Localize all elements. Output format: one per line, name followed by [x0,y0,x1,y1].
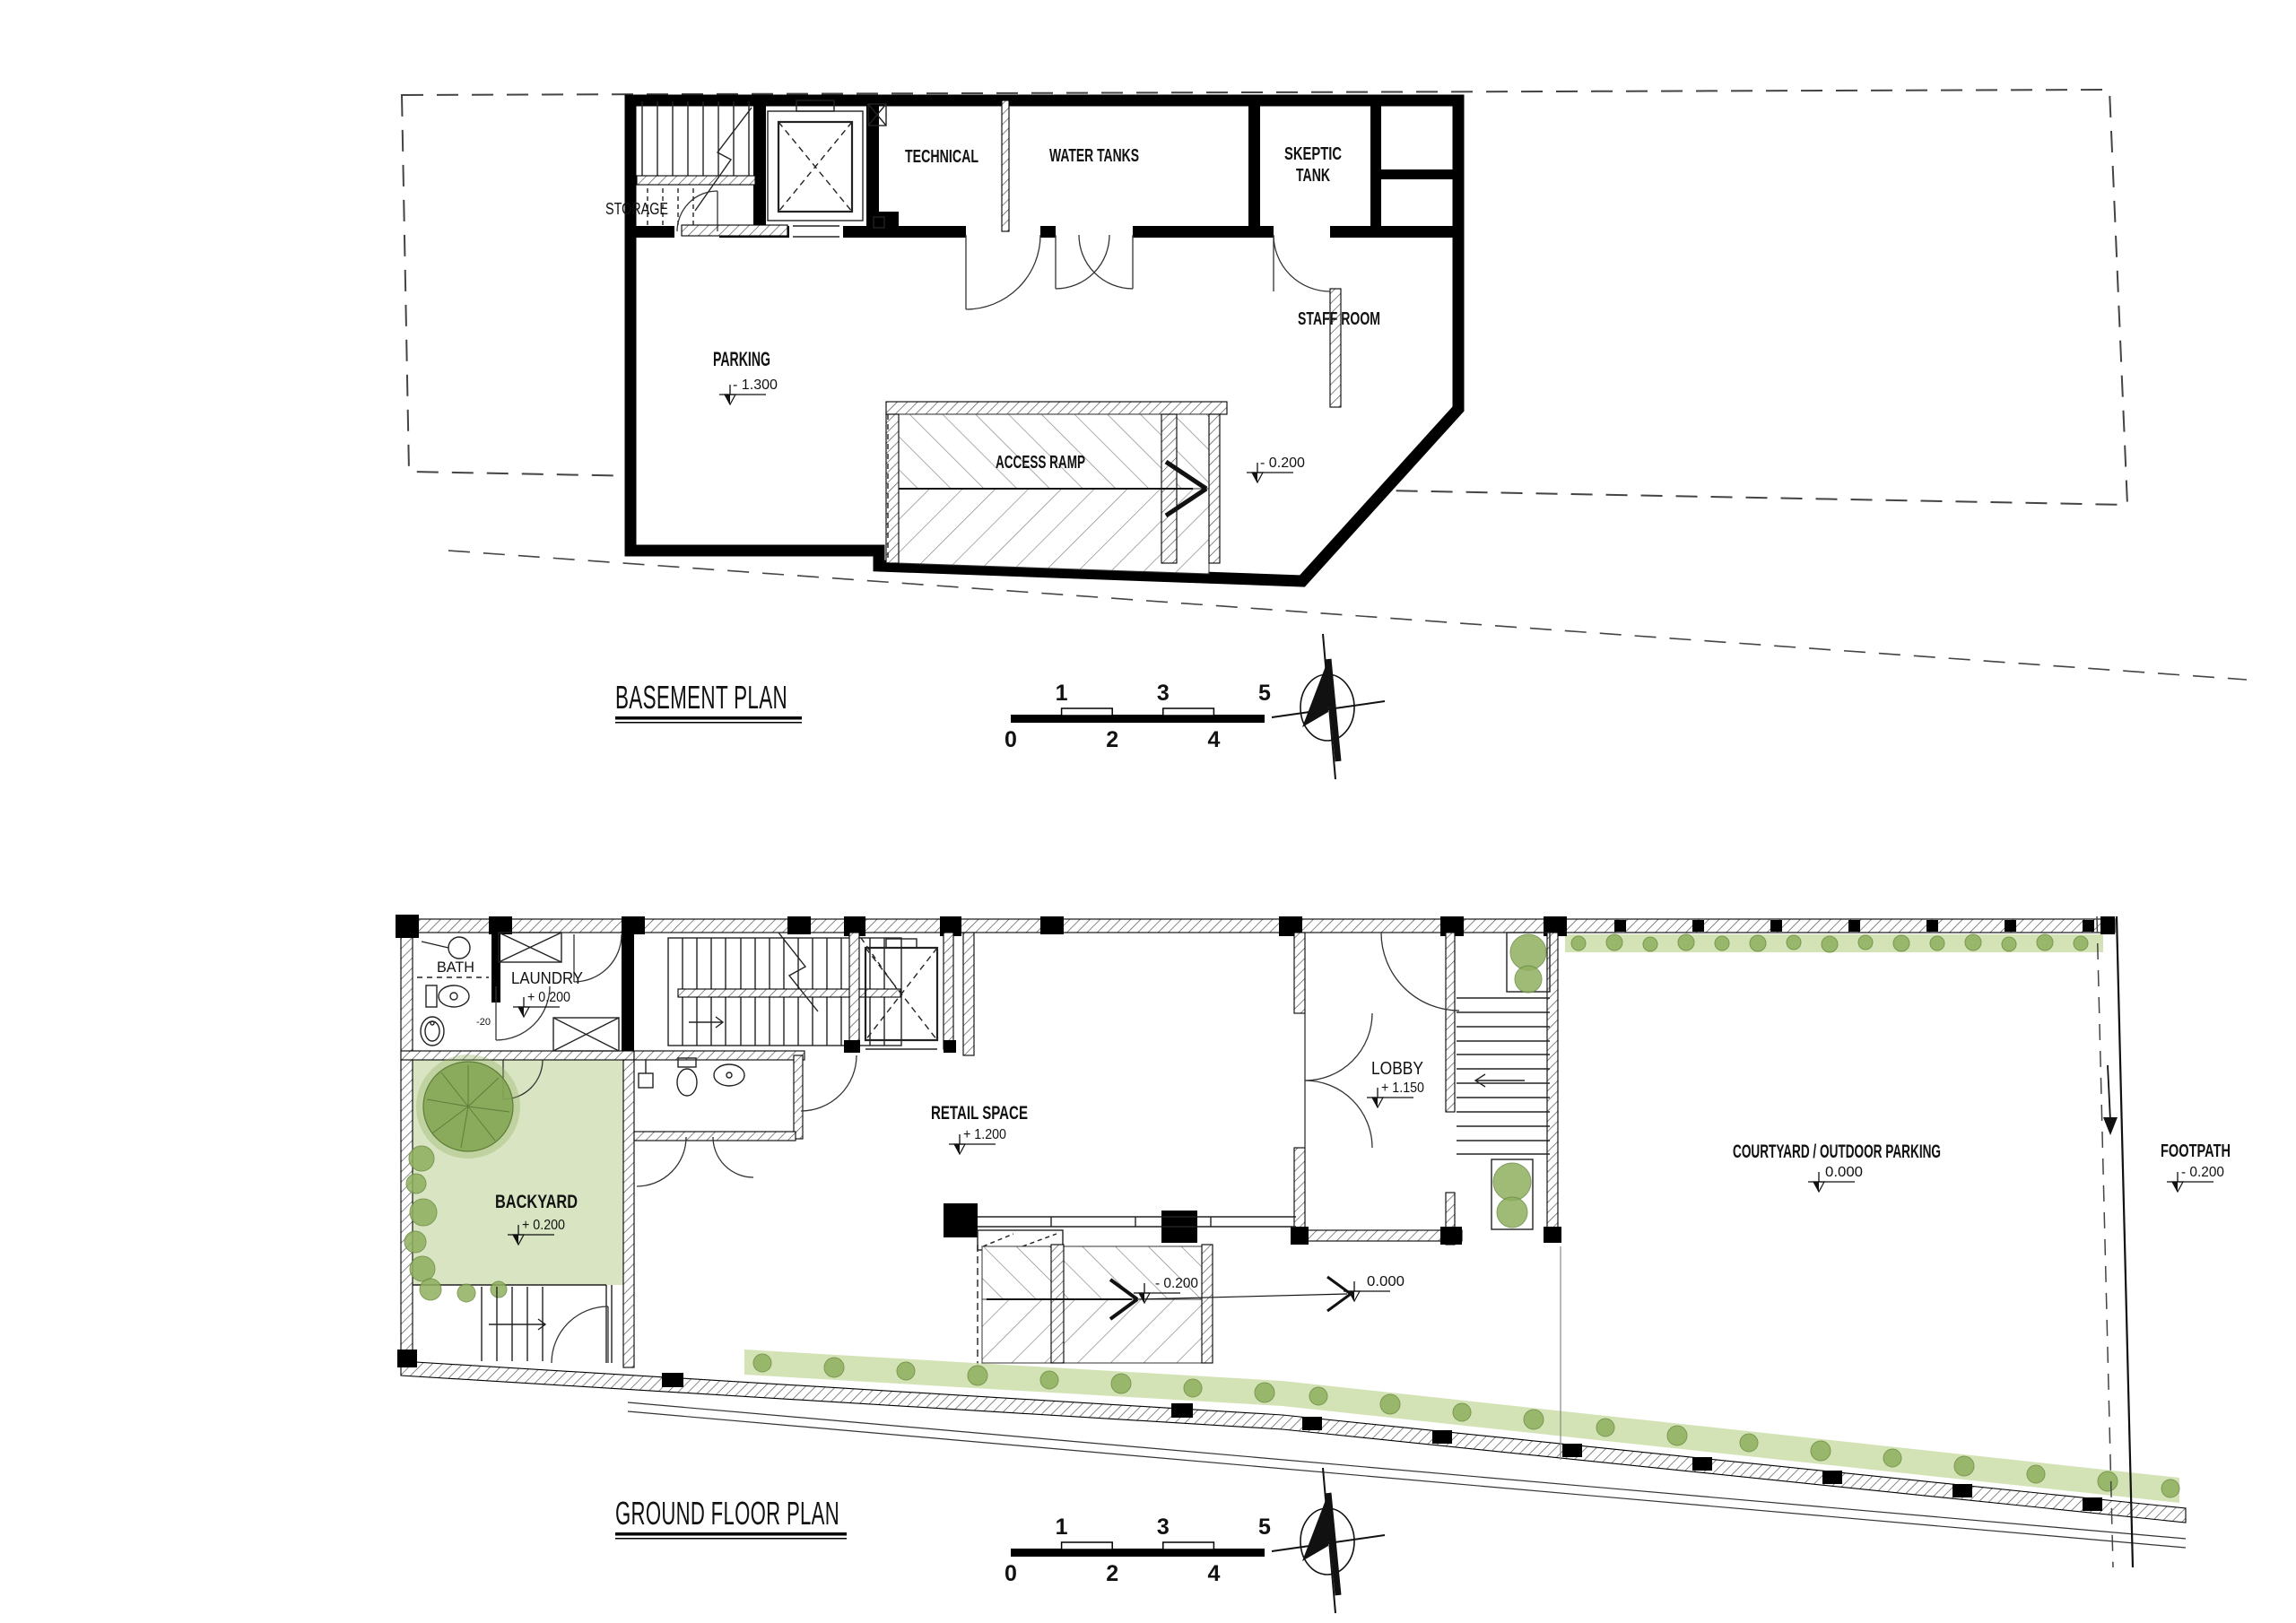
level-lobby: + 1.150 [1381,1081,1424,1096]
svg-text:5: 5 [1258,1515,1271,1540]
floor-plan-drawing: STORAGE TECHNICAL WATER TANKS SKEPTIC TA… [0,0,2296,1623]
svg-text:3: 3 [1157,681,1170,706]
level-driveway-low: - 0.200 [1155,1276,1198,1291]
room-label-staff-room: STAFF ROOM [1298,309,1380,329]
level-access-ramp: - 0.200 [1260,456,1305,471]
svg-text:0: 0 [1004,1561,1017,1586]
backyard-tree [416,1055,520,1159]
room-label-skeptic-tank-2: TANK [1296,166,1330,186]
basement-plan: STORAGE TECHNICAL WATER TANKS SKEPTIC TA… [402,90,2247,779]
street-direction-arrow [2103,1117,2118,1135]
svg-text:5: 5 [1258,681,1271,706]
room-label-parking: PARKING [713,348,770,370]
level-courtyard: 0.000 [1825,1165,1863,1180]
north-arrow-basement [1272,634,1385,779]
bath-fixtures [417,937,489,1046]
drawing-sheet: STORAGE TECHNICAL WATER TANKS SKEPTIC TA… [0,0,2296,1623]
level-backyard: + 0.200 [522,1218,565,1233]
door-dimension: -20 [476,1017,491,1028]
north-arrow-ground [1272,1468,1385,1613]
hedge-plants-top [1571,934,2088,952]
svg-text:2: 2 [1106,1561,1118,1586]
level-driveway-high: 0.000 [1367,1274,1405,1289]
room-label-water-tanks: WATER TANKS [1049,146,1139,166]
room-label-skeptic-tank-1: SKEPTIC [1284,144,1342,164]
svg-text:1: 1 [1056,1515,1068,1540]
room-label-storage: STORAGE [605,200,668,218]
level-laundry: + 0.200 [527,990,570,1005]
street-line-dashed [448,551,2247,680]
room-label-courtyard: COURTYARD / OUTDOOR PARKING [1733,1141,1941,1162]
ground-title-underline [615,1532,847,1536]
svg-text:3: 3 [1157,1515,1170,1540]
room-label-lobby: LOBBY [1371,1059,1423,1079]
room-label-technical: TECHNICAL [905,147,978,167]
basement-title-underline [615,716,802,720]
svg-text:2: 2 [1106,727,1118,752]
ground-title: GROUND FLOOR PLAN [615,1495,839,1532]
room-label-retail: RETAIL SPACE [931,1103,1028,1124]
svg-text:1: 1 [1056,681,1068,706]
basement-scale-bar: 1 3 5 0 2 4 [1004,681,1271,752]
driveway-ramp [978,1245,1351,1365]
exterior-stairs [1457,933,1550,1229]
room-label-access-ramp: ACCESS RAMP [996,453,1085,473]
room-label-footpath: FOOTPATH [2161,1141,2231,1161]
basement-access-ramp [886,402,1227,574]
room-label-backyard: BACKYARD [495,1192,578,1212]
svg-text:4: 4 [1207,727,1220,752]
level-retail: + 1.200 [963,1127,1006,1142]
south-hedge [744,1350,2179,1503]
ground-floor-plan: BATH LAUNDRY + 0.200 -20 BACKYARD + 0.20… [396,915,2231,1613]
room-label-laundry: LAUNDRY [511,969,583,987]
wc-fixtures [639,1058,744,1096]
ground-scale-bar: 1 3 5 0 2 4 [1004,1515,1271,1586]
backyard-stairs [482,1287,545,1361]
svg-text:0: 0 [1004,727,1017,752]
room-label-bath: BATH [437,959,474,976]
retail-south-windows [944,1203,1296,1250]
svg-text:4: 4 [1207,1561,1220,1586]
basement-title: BASEMENT PLAN [615,679,787,716]
level-parking: - 1.300 [733,378,778,393]
level-footpath: - 0.200 [2181,1165,2224,1180]
